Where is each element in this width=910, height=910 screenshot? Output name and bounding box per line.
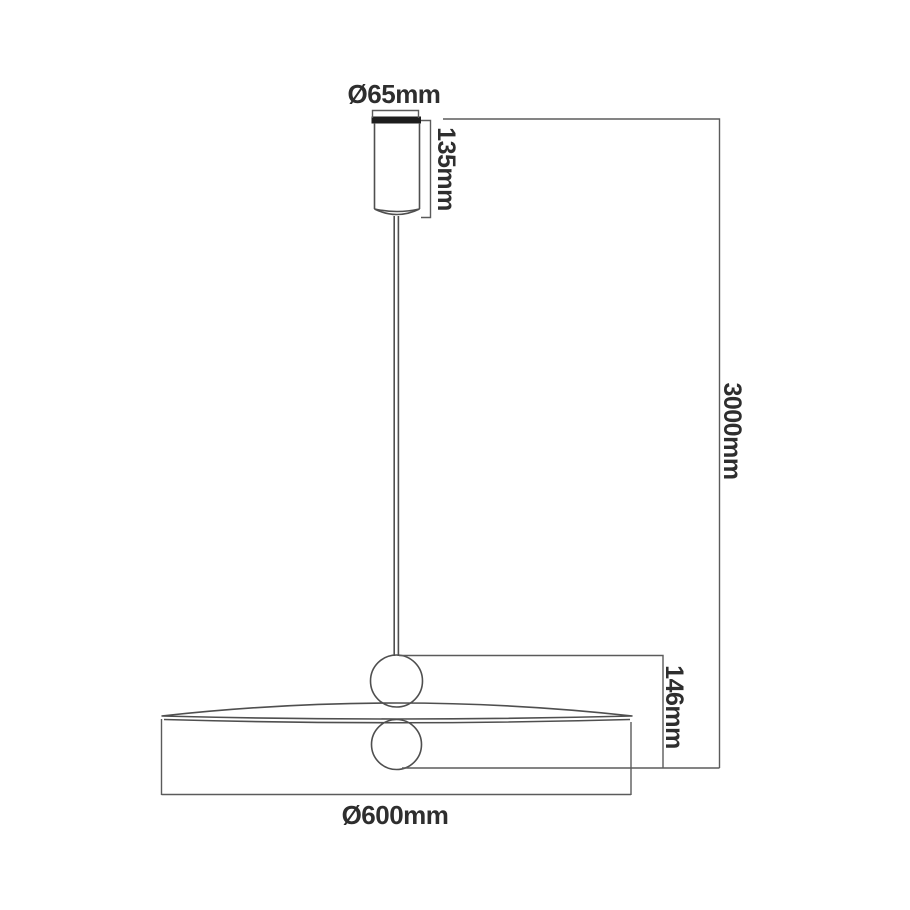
canopy-top-plate <box>372 117 422 124</box>
lamp-fixture <box>162 655 633 770</box>
fixture-height-dimension: 146mm <box>399 656 720 769</box>
fixture-height-bracket-top <box>399 656 663 769</box>
suspension-cord <box>394 216 398 656</box>
canopy-height-label: 135mm <box>432 127 460 211</box>
canopy-diameter-dimension: Ø65mm <box>348 79 441 118</box>
suspension-length-label: 3000mm <box>718 382 746 479</box>
dimension-drawing: Ø65mm 135mm 3000mm 146mm Ø600mm <box>0 0 910 910</box>
shade-diameter-dimension: Ø600mm <box>162 719 632 830</box>
shade-disc <box>162 703 633 719</box>
shade-diameter-label: Ø600mm <box>342 800 449 830</box>
upper-sphere <box>371 655 423 707</box>
canopy-cylinder <box>372 117 422 215</box>
canopy-height-dimension: 135mm <box>421 121 460 218</box>
lower-sphere <box>372 720 422 770</box>
fixture-height-label: 146mm <box>660 665 688 749</box>
canopy-diameter-label: Ø65mm <box>348 79 441 109</box>
suspension-length-dimension: 3000mm <box>443 119 746 768</box>
canopy-height-bracket <box>421 121 431 218</box>
drawing-svg: Ø65mm 135mm 3000mm 146mm Ø600mm <box>0 0 910 910</box>
